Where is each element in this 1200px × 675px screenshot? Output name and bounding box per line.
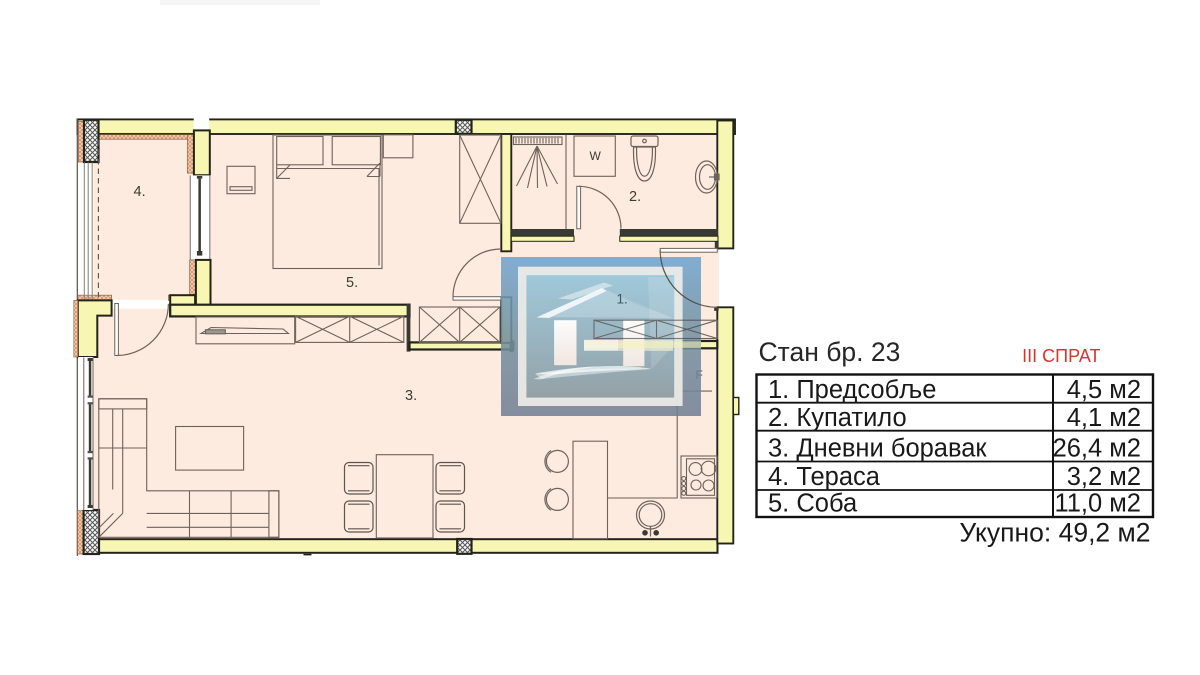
svg-text:3. Дневни боравак: 3. Дневни боравак (768, 435, 987, 463)
svg-text:III СПРАТ: III СПРАТ (1022, 346, 1100, 366)
svg-text:11,0 м2: 11,0 м2 (1054, 490, 1141, 518)
svg-text:Укупно: 49,2 м2: Укупно: 49,2 м2 (959, 518, 1150, 548)
svg-text:4. Тераса: 4. Тераса (768, 463, 881, 491)
svg-text:5. Соба: 5. Соба (768, 490, 858, 518)
svg-text:W: W (590, 149, 602, 163)
svg-text:26,4 м2: 26,4 м2 (1053, 435, 1141, 463)
svg-text:5.: 5. (346, 275, 358, 291)
svg-text:1. Предсобље: 1. Предсобље (768, 376, 936, 404)
svg-text:2.: 2. (629, 189, 641, 205)
svg-text:3,2 м2: 3,2 м2 (1067, 463, 1141, 491)
svg-text:3.: 3. (405, 388, 417, 404)
svg-text:Стан бр. 23: Стан бр. 23 (759, 337, 901, 367)
svg-text:4.: 4. (134, 184, 146, 200)
svg-text:2. Купатило: 2. Купатило (768, 404, 907, 432)
svg-text:1.: 1. (617, 292, 628, 307)
svg-text:4,1 м2: 4,1 м2 (1067, 404, 1141, 432)
svg-text:4,5 м2: 4,5 м2 (1067, 376, 1141, 404)
